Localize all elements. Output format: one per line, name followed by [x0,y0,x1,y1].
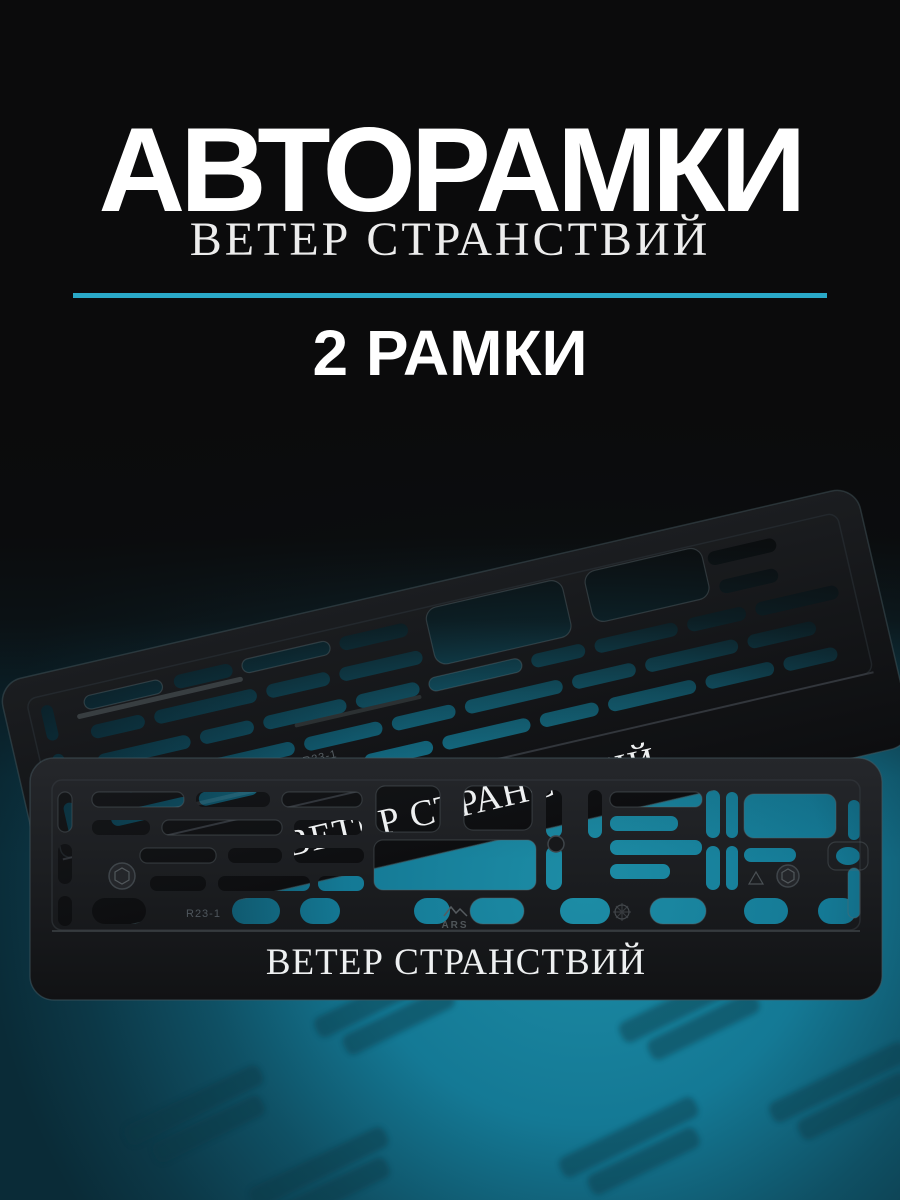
bolt-icon [109,863,135,889]
product-photo: R23-1 ВЕТЕР СТРАНСТВИЙ [0,400,900,1200]
center-bolt-icon [548,836,564,852]
product-name: ВЕТЕР СТРАНСТВИЙ [0,212,900,267]
product-card: АВТОРАМКИ ВЕТЕР СТРАНСТВИЙ 2 РАМКИ [0,0,900,1200]
bolt-icon [777,865,799,887]
quantity-label: 2 РАМКИ [0,318,900,388]
front-frame-marking: R23-1 [186,908,221,920]
brand-logo-text: ARS [441,920,468,931]
accent-divider [73,293,827,298]
front-frame-text: ВЕТЕР СТРАНСТВИЙ [266,941,646,983]
front-frame: R23-1 ARS ВЕТЕР СТРАНСТВИЙ [30,758,882,1000]
